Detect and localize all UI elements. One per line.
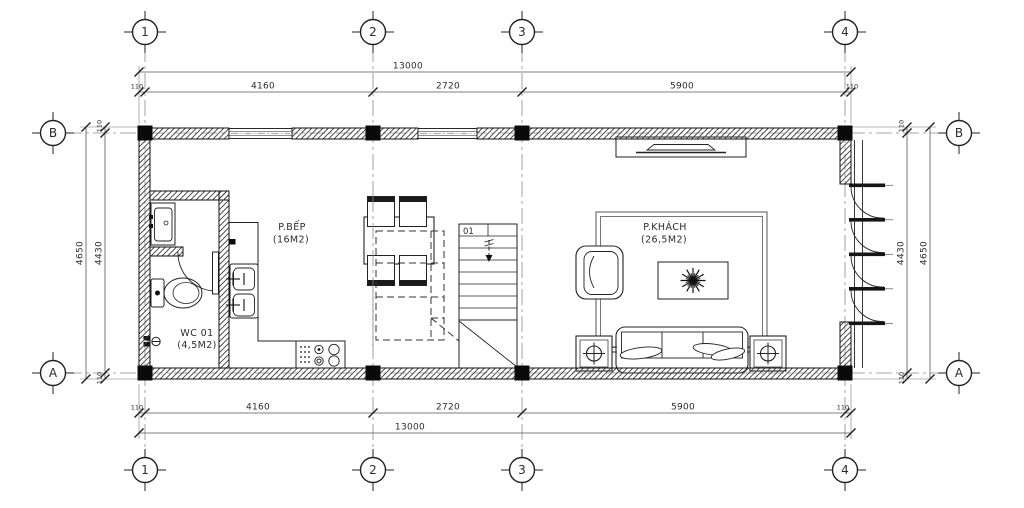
wall-top-seg3 [477, 128, 851, 139]
wall-right-top [840, 139, 851, 184]
svg-text:B: B [49, 126, 57, 140]
grid-bubble-B-left: B [32, 112, 74, 154]
dim-seg-4160-top: 4160 [251, 82, 275, 92]
dim-seg-2720-top: 2720 [436, 82, 460, 92]
column [138, 126, 153, 141]
wall-wc-kitchen [219, 191, 229, 368]
room-label-living-area: (26,5M2) [641, 235, 687, 246]
grid-bubble-A-right: A [938, 352, 980, 394]
dim-seg-2720-bottom: 2720 [436, 403, 460, 413]
svg-text:3: 3 [518, 25, 526, 39]
kitchen [226, 196, 459, 368]
svg-text:2: 2 [369, 463, 377, 477]
dim-side-4430-left: 4430 [95, 241, 105, 265]
kitchen-sink [226, 264, 258, 318]
wall-bottom [139, 368, 851, 379]
floor-plan-canvas: 13000 110 4160 2720 5900 110 110 4160 27… [0, 0, 1024, 508]
svg-text:A: A [49, 366, 58, 380]
wc-room [144, 203, 219, 347]
cooktop [296, 341, 345, 368]
wall-top-seg1 [150, 128, 229, 139]
dimensions-left: 4650 4430 110 110 [76, 120, 139, 384]
grid-bubble-1-bottom: 1 [124, 449, 166, 491]
grid-bubble-1-top: 1 [124, 11, 166, 53]
dining-chair [400, 197, 427, 227]
grid-bubble-3-bottom: 3 [501, 449, 543, 491]
living-room [576, 137, 786, 373]
svg-text:2: 2 [369, 25, 377, 39]
dim-seg-4160-bottom: 4160 [246, 403, 270, 413]
dim-total-top: 13000 [393, 62, 423, 72]
svg-text:4: 4 [841, 25, 849, 39]
folding-door [849, 140, 893, 368]
tv-icon [647, 145, 715, 151]
grid-bubble-3-top: 3 [501, 11, 543, 53]
wall-top-seg2 [292, 128, 418, 139]
grid-bubble-2-bottom: 2 [352, 449, 394, 491]
dim-seg-110-right-bottom: 110 [837, 404, 849, 412]
dining-set [364, 197, 434, 286]
side-table-right [747, 336, 786, 371]
wc-sink [149, 203, 175, 245]
column [515, 126, 530, 141]
column [138, 366, 153, 381]
sofa [616, 327, 748, 373]
dim-side-4430-right: 4430 [897, 241, 907, 265]
dimensions-right: 4430 110 110 4650 [852, 120, 936, 384]
column [838, 126, 853, 141]
column [366, 366, 381, 381]
dimensions-bottom: 110 4160 2720 5900 110 13000 [131, 384, 856, 439]
dim-side-110-right-top: 110 [898, 120, 906, 132]
room-label-wc-area: (4,5M2) [177, 340, 217, 351]
column [515, 366, 530, 381]
grid-bubble-4-bottom: 4 [824, 449, 866, 491]
dim-side-110-right-bottom: 110 [898, 372, 906, 384]
svg-text:4: 4 [841, 463, 849, 477]
dim-side-4650-right: 4650 [920, 241, 930, 265]
grid-bubble-B-right: B [938, 112, 980, 154]
window-1 [229, 129, 292, 139]
staircase: 01 [459, 224, 517, 368]
floor-plan-svg: 13000 110 4160 2720 5900 110 110 4160 27… [0, 0, 1024, 508]
side-table-left [576, 336, 617, 371]
wall-wc-stub [150, 247, 183, 256]
svg-text:A: A [955, 366, 964, 380]
dim-side-4650-left: 4650 [76, 241, 86, 265]
coffee-table [658, 262, 728, 299]
door-jamb [229, 239, 236, 245]
window-2 [418, 129, 477, 139]
svg-text:1: 1 [141, 463, 149, 477]
grid-bubble-A-left: A [32, 352, 74, 394]
stair-flight-label: 01 [463, 227, 474, 237]
svg-text:B: B [955, 126, 963, 140]
grid-bubble-2-top: 2 [352, 11, 394, 53]
toilet [151, 278, 202, 308]
column [366, 126, 381, 141]
wall-wc-top [150, 191, 229, 200]
svg-text:1: 1 [141, 25, 149, 39]
wall-left [139, 128, 150, 379]
stair-break-line [459, 321, 517, 367]
tv-cabinet [616, 137, 746, 157]
dim-total-bottom: 13000 [395, 423, 425, 433]
grid-bubble-4-top: 4 [824, 11, 866, 53]
dining-chair [368, 256, 395, 286]
armchair [576, 246, 623, 299]
dim-seg-110-left-top: 110 [131, 83, 143, 91]
dim-seg-5900-top: 5900 [670, 82, 694, 92]
dining-chair [368, 197, 395, 227]
dim-side-110-left-top: 110 [96, 120, 104, 132]
dimensions-top: 13000 110 4160 2720 5900 110 [131, 62, 858, 125]
room-label-kitchen-area: (16M2) [273, 235, 309, 246]
dining-chair [400, 256, 427, 286]
wall-right-bottom [840, 322, 851, 368]
svg-text:3: 3 [518, 463, 526, 477]
column [838, 366, 853, 381]
dim-seg-110-right-top: 110 [846, 83, 858, 91]
dim-seg-5900-bottom: 5900 [671, 403, 695, 413]
dim-seg-110-left-bottom: 110 [131, 404, 143, 412]
room-label-living-name: P.KHÁCH [643, 221, 687, 233]
room-label-wc-name: WC 01 [180, 328, 213, 339]
dim-side-110-left-bottom: 110 [96, 372, 104, 384]
room-label-kitchen-name: P.BẾP [278, 221, 306, 233]
